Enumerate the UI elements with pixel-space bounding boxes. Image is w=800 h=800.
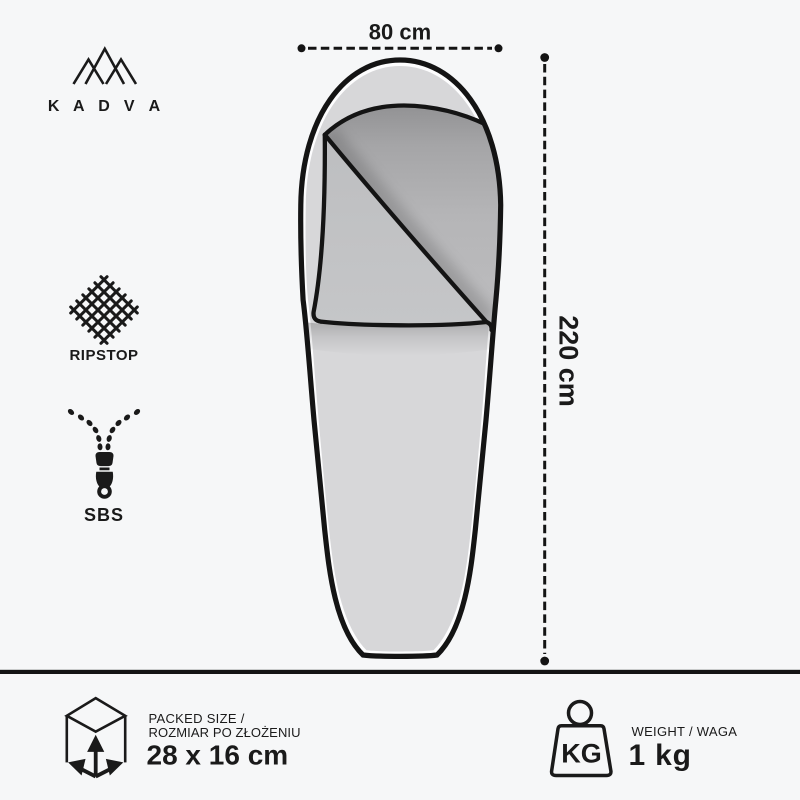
svg-text:RIPSTOP: RIPSTOP xyxy=(69,347,138,364)
svg-text:A: A xyxy=(73,98,85,115)
svg-text:220 cm: 220 cm xyxy=(554,315,584,407)
svg-text:D: D xyxy=(98,98,110,115)
svg-text:28 x 16 cm: 28 x 16 cm xyxy=(147,740,289,771)
svg-text:V: V xyxy=(124,98,135,115)
svg-text:KG: KG xyxy=(561,739,602,769)
svg-text:SBS: SBS xyxy=(84,505,124,525)
svg-text:80 cm: 80 cm xyxy=(369,20,431,45)
svg-text:ROZMIAR PO ZŁOŻENIU: ROZMIAR PO ZŁOŻENIU xyxy=(149,725,301,740)
svg-text:PACKED SIZE /: PACKED SIZE / xyxy=(149,711,245,726)
svg-text:A: A xyxy=(149,98,161,115)
svg-text:K: K xyxy=(48,98,60,115)
svg-text:1 kg: 1 kg xyxy=(629,739,692,772)
svg-text:WEIGHT / WAGA: WEIGHT / WAGA xyxy=(632,724,738,739)
